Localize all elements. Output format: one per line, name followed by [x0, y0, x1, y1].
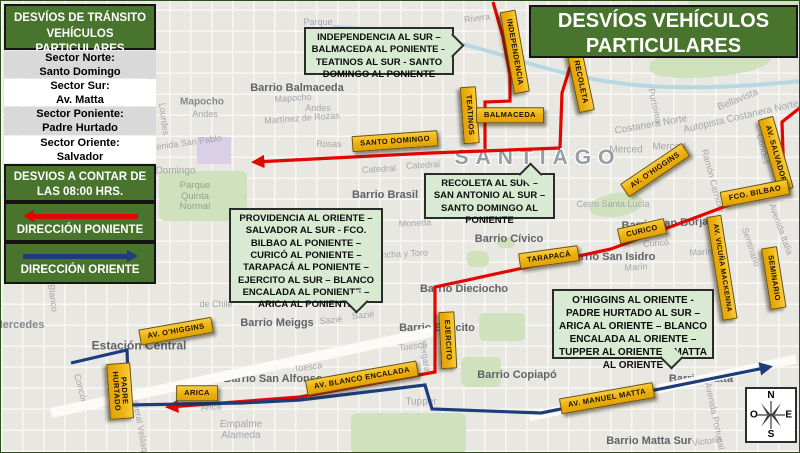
road-label-arica: ARICA [176, 385, 218, 401]
map-label-barrio-meiggs: Barrio Meiggs [240, 317, 313, 329]
map-label-mercedes: Mercedes [0, 319, 44, 331]
callout-north-text: INDEPENDENCIA AL SUR – BALMACEDA AL PONI… [312, 32, 447, 80]
map-label-catedral-2: Catedral [406, 159, 441, 171]
legend-header-text: DESVÍOS DE TRÁNSITO VEHÍCULOS PARTICULAR… [14, 12, 146, 55]
legend-schedule-text: DESVIOS A CONTAR DE LAS 08:00 HRS. [14, 171, 146, 198]
park-civico-1 [467, 251, 489, 267]
compass-star-icon [747, 389, 795, 441]
park-ohiggins [351, 413, 466, 453]
legend-direction-east-text: DIRECCIÓN ORIENTE [21, 264, 140, 276]
page-title: DESVÍOS VEHÍCULOS PARTICULARES [529, 5, 798, 58]
map-label-barrio-matta-sur: Barrio Matta Sur [606, 435, 692, 447]
callout-east-detour: O’HIGGINS AL ORIENTE - PADRE HURTADO AL … [552, 289, 714, 359]
legend-sector-poniente: Sector Poniente: Padre Hurtado [4, 107, 156, 135]
map-label-marin-2: Marín [624, 261, 648, 273]
map-label-barrio-brasil: Barrio Brasil [352, 189, 418, 201]
park-ejercito [479, 313, 525, 341]
page-title-text: DESVÍOS VEHÍCULOS PARTICULARES [558, 10, 769, 57]
map-label-andes: Andes [192, 109, 218, 119]
legend-sector-oriente: Sector Oriente: Salvador [4, 136, 156, 163]
map-label-arica-st: Arica [200, 401, 221, 412]
map-label-mapocho: Mapocho [180, 96, 224, 107]
legend-direction-west: DIRECCIÓN PONIENTE [4, 202, 156, 242]
callout-recoleta-detour: RECOLETA AL SUR – SAN ANTONIO AL SUR – S… [424, 173, 555, 219]
compass-rose: N S O E [745, 387, 797, 443]
sector-sur-label: Sector Sur: [4, 80, 156, 94]
map-label-tupper: Tupper [405, 396, 436, 407]
sector-norte-value: Santo Domingo [4, 66, 156, 80]
map-label-parque-quinta-normal: Parque Quinta Normal [180, 181, 211, 213]
map-label-empalme-alameda: Empalme Alameda [220, 419, 262, 441]
map-label-barrio-copiapo: Barrio Copiapó [477, 369, 556, 381]
map-label-de-chile: de Chile [199, 299, 232, 309]
road-label-padre-hurtado: PADRE HURTADO [106, 362, 134, 419]
legend-schedule: DESVIOS A CONTAR DE LAS 08:00 HRS. [4, 164, 156, 202]
map-label-barrio-dieciocho: Barrio Dieciocho [420, 283, 508, 295]
callout-north-detour: INDEPENDENCIA AL SUR – BALMACEDA AL PONI… [304, 27, 454, 75]
legend-direction-west-text: DIRECCIÓN PONIENTE [17, 224, 144, 236]
sector-sur-value: Av. Matta [4, 94, 156, 108]
sector-oriente-label: Sector Oriente: [4, 137, 156, 151]
detour-map-infographic: SANTIAGO Rivera Parque Barrio Balmaceda … [0, 0, 800, 453]
legend-direction-east: DIRECCIÓN ORIENTE [4, 242, 156, 284]
legend-sector-norte: Sector Norte: Santo Domingo [4, 51, 156, 78]
sector-norte-label: Sector Norte: [4, 52, 156, 66]
east-arrow-icon [6, 250, 154, 262]
map-label-parque: Parque [303, 17, 332, 27]
map-label-barrio-civico: Barrio Cívico [475, 233, 543, 245]
map-label-marin: Marín [689, 246, 713, 258]
road-label-ejercito: EJERCITO [439, 311, 458, 368]
map-label-curico-st: Curicó [643, 237, 670, 249]
map-label-rosas: Rosas [316, 139, 342, 149]
map-label-barrio-matta: Barrio Matta [669, 373, 733, 385]
sector-poniente-label: Sector Poniente: [4, 108, 156, 122]
legend-header: DESVÍOS DE TRÁNSITO VEHÍCULOS PARTICULAR… [4, 4, 156, 50]
west-arrow-icon [6, 210, 154, 222]
map-label-estacion-central: Estación Central [92, 339, 187, 352]
map-label-santiago: SANTIAGO [455, 146, 622, 170]
map-label-cerro-santa-lucia: Cerro Santa Lucía [576, 199, 649, 209]
sector-poniente-value: Padre Hurtado [4, 122, 156, 136]
map-label-merced: Merced [609, 144, 642, 155]
map-label-catedral: Catedral [362, 163, 397, 175]
road-label-balmaceda: BALMACEDA [476, 107, 544, 123]
legend-sector-sur: Sector Sur: Av. Matta [4, 79, 156, 106]
sector-oriente-value: Salvador [4, 151, 156, 165]
map-label-barrio-ejercito: Barrio Ejército [399, 322, 475, 334]
callout-west-detour: PROVIDENCIA AL ORIENTE – SALVADOR AL SUR… [229, 208, 383, 303]
